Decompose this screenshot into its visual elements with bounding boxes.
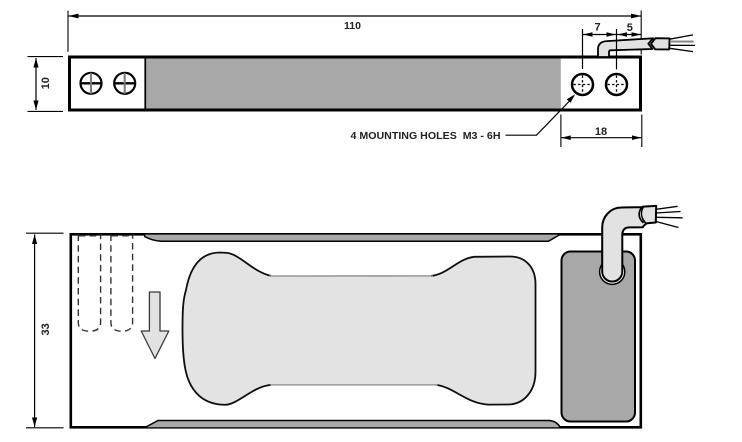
svg-text:18: 18 xyxy=(595,126,607,138)
svg-text:4 MOUNTING HOLES M3 - 6H: 4 MOUNTING HOLES M3 - 6H xyxy=(351,131,501,142)
svg-text:7: 7 xyxy=(594,22,600,34)
svg-text:33: 33 xyxy=(40,323,52,335)
svg-text:5: 5 xyxy=(627,22,633,34)
svg-text:10: 10 xyxy=(40,77,52,89)
svg-text:110: 110 xyxy=(344,20,361,32)
